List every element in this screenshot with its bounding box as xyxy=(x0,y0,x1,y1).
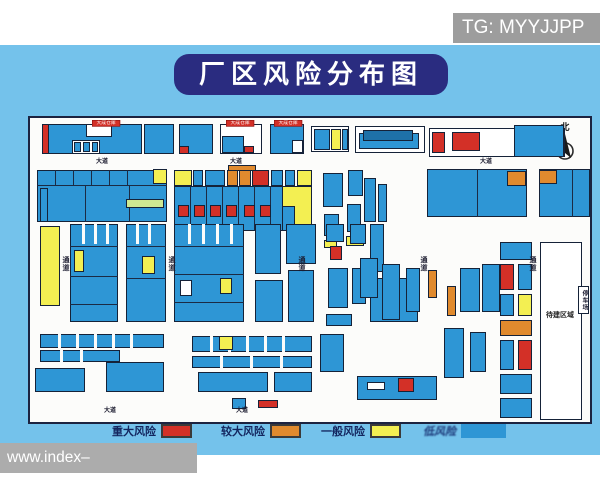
building-rect xyxy=(226,205,237,217)
building-rect xyxy=(70,246,118,247)
building-rect xyxy=(80,350,83,362)
building-rect xyxy=(37,170,167,222)
building-rect xyxy=(258,400,278,408)
building-rect xyxy=(378,184,387,222)
building-rect xyxy=(330,246,342,260)
legend-label: 一般风险 xyxy=(321,423,365,439)
building-rect xyxy=(246,336,249,352)
building-rect xyxy=(130,334,133,348)
building-rect xyxy=(148,224,151,244)
building-rect xyxy=(297,170,312,186)
building-rect xyxy=(60,350,63,362)
building-rect xyxy=(406,268,420,312)
building-rect xyxy=(94,224,97,244)
bottom-watermark-text: www.index–365wanmei.com xyxy=(7,449,120,480)
building-rect xyxy=(136,224,139,244)
building-rect xyxy=(40,226,60,306)
building-rect xyxy=(239,170,251,186)
map-label: 大道 xyxy=(230,156,242,165)
building-rect xyxy=(126,278,166,279)
building-rect xyxy=(227,170,238,186)
risk-legend: 重大风险较大风险一般风险低风险 xyxy=(0,423,600,441)
building-rect xyxy=(252,170,269,186)
top-watermark-badge: TG: MYYJJPP xyxy=(453,13,600,43)
building-rect xyxy=(350,224,366,244)
map-label: 通道 xyxy=(296,256,306,272)
building-rect xyxy=(174,246,244,247)
building-rect xyxy=(444,328,464,378)
map-label: 大道 xyxy=(480,156,492,165)
map-label: 停车场 xyxy=(580,290,589,311)
building-rect xyxy=(285,170,295,186)
title-banner: 厂区风险分布图 xyxy=(174,54,448,95)
building-rect xyxy=(348,170,363,196)
building-rect xyxy=(382,264,400,320)
building-rect xyxy=(70,304,118,305)
building-rect xyxy=(106,224,109,244)
building-rect xyxy=(193,170,203,186)
building-rect xyxy=(271,170,283,186)
map-label: 通道 xyxy=(60,256,70,272)
building-rect xyxy=(507,171,526,186)
legend-label: 低风险 xyxy=(423,423,456,439)
building-rect xyxy=(198,372,268,392)
building-rect xyxy=(180,280,192,296)
bottom-watermark-bar: www.index–365wanmei.com xyxy=(0,443,197,473)
building-rect xyxy=(76,334,79,348)
building-rect xyxy=(244,205,255,217)
building-rect xyxy=(220,278,232,294)
legend-label: 较大风险 xyxy=(221,423,265,439)
map-label: 大道 xyxy=(236,405,248,414)
building-rect xyxy=(55,170,56,185)
building-rect xyxy=(482,264,500,312)
legend-item: 重大风险 xyxy=(112,423,192,439)
map-label: 大道 xyxy=(96,156,108,165)
building-rect xyxy=(518,340,532,370)
building-rect xyxy=(470,332,486,372)
building-rect xyxy=(85,185,86,222)
building-rect xyxy=(282,336,285,352)
legend-item: 一般风险 xyxy=(321,423,401,439)
building-rect xyxy=(112,334,115,348)
building-rect xyxy=(500,374,532,394)
building-rect xyxy=(230,224,233,244)
legend-color-swatch xyxy=(270,424,301,438)
building-rect xyxy=(518,294,532,316)
map-label: 通道 xyxy=(527,256,537,272)
building-rect xyxy=(452,132,480,151)
building-rect xyxy=(274,372,312,392)
building-rect xyxy=(572,169,573,217)
map-label: 通道 xyxy=(166,256,176,272)
building-rect xyxy=(106,362,164,392)
building-rect xyxy=(250,356,253,368)
building-rect xyxy=(174,170,192,186)
building-rect xyxy=(178,205,189,217)
legend-item: 较大风险 xyxy=(221,423,301,439)
legend-label: 重大风险 xyxy=(112,423,156,439)
building-rect xyxy=(314,129,330,150)
building-rect xyxy=(142,256,155,274)
building-rect xyxy=(126,246,166,247)
building-rect xyxy=(500,340,514,370)
building-rect xyxy=(58,334,61,348)
building-rect xyxy=(342,129,348,150)
legend-color-swatch xyxy=(370,424,401,438)
building-rect xyxy=(210,205,221,217)
building-rect xyxy=(94,334,97,348)
building-rect xyxy=(447,286,456,316)
building-rect xyxy=(460,268,480,312)
building-rect xyxy=(244,146,254,153)
page-title: 厂区风险分布图 xyxy=(199,59,423,89)
building-rect xyxy=(92,142,98,152)
building-red-tag: 大成仓库 xyxy=(92,120,120,127)
building-rect xyxy=(74,250,84,272)
building-rect xyxy=(514,125,564,157)
building-rect xyxy=(91,170,92,185)
building-rect xyxy=(292,140,303,153)
building-rect xyxy=(126,199,164,208)
building-rect xyxy=(540,242,582,420)
building-rect xyxy=(127,170,128,185)
building-rect xyxy=(255,280,283,322)
building-rect xyxy=(216,224,219,244)
building-red-tag: 大成仓库 xyxy=(274,120,302,127)
building-rect xyxy=(37,185,167,186)
poster-page: TG: MYYJJPP 厂区风险分布图 北 大道大道大道大道大道通道通道通道通道… xyxy=(0,0,600,480)
building-rect xyxy=(280,356,283,368)
building-rect xyxy=(174,274,244,275)
building-rect xyxy=(205,170,225,186)
building-rect xyxy=(264,336,267,352)
building-rect xyxy=(194,205,205,217)
building-rect xyxy=(500,320,532,336)
legend-color-swatch xyxy=(461,424,506,438)
building-rect xyxy=(202,224,205,244)
building-rect xyxy=(477,169,478,217)
building-rect xyxy=(42,124,49,154)
map: 北 大道大道大道大道大道通道通道通道通道通道待建区域停车场大成仓库大成仓库大成仓… xyxy=(28,116,592,424)
building-rect xyxy=(260,205,271,217)
legend-color-swatch xyxy=(161,424,192,438)
building-rect xyxy=(364,178,376,222)
building-rect xyxy=(363,130,413,141)
building-rect xyxy=(288,270,314,322)
building-rect xyxy=(428,270,437,298)
building-rect xyxy=(432,132,445,153)
building-rect xyxy=(360,258,378,298)
building-rect xyxy=(109,170,110,185)
building-rect xyxy=(500,294,514,316)
building-rect xyxy=(222,136,244,153)
building-rect xyxy=(323,173,343,207)
building-red-tag: 大成仓库 xyxy=(226,120,254,127)
top-watermark-text: TG: MYYJJPP xyxy=(462,17,584,38)
building-rect xyxy=(367,382,385,390)
building-rect xyxy=(174,302,244,303)
building-rect xyxy=(74,142,81,152)
building-rect xyxy=(73,170,74,185)
building-rect xyxy=(83,142,90,152)
legend-item: 低风险 xyxy=(423,423,506,439)
building-rect xyxy=(539,170,557,184)
building-rect xyxy=(179,146,189,154)
building-rect xyxy=(326,224,344,242)
building-rect xyxy=(40,188,48,222)
building-rect xyxy=(153,169,167,184)
building-rect xyxy=(328,268,348,308)
building-rect xyxy=(144,124,174,154)
building-rect xyxy=(219,336,233,350)
building-rect xyxy=(500,264,514,290)
map-label: 待建区域 xyxy=(546,310,574,320)
building-rect xyxy=(500,398,532,418)
building-rect xyxy=(220,356,223,368)
building-rect xyxy=(188,224,191,244)
map-label: 大道 xyxy=(104,405,116,414)
building-rect xyxy=(70,276,118,277)
building-rect xyxy=(326,314,352,326)
building-rect xyxy=(174,224,244,322)
building-rect xyxy=(35,368,85,392)
building-rect xyxy=(398,378,414,392)
building-rect xyxy=(320,334,344,372)
building-rect xyxy=(210,336,213,352)
building-rect xyxy=(331,129,341,150)
building-rect xyxy=(255,224,281,274)
building-rect xyxy=(82,224,85,244)
map-label: 通道 xyxy=(418,256,428,272)
